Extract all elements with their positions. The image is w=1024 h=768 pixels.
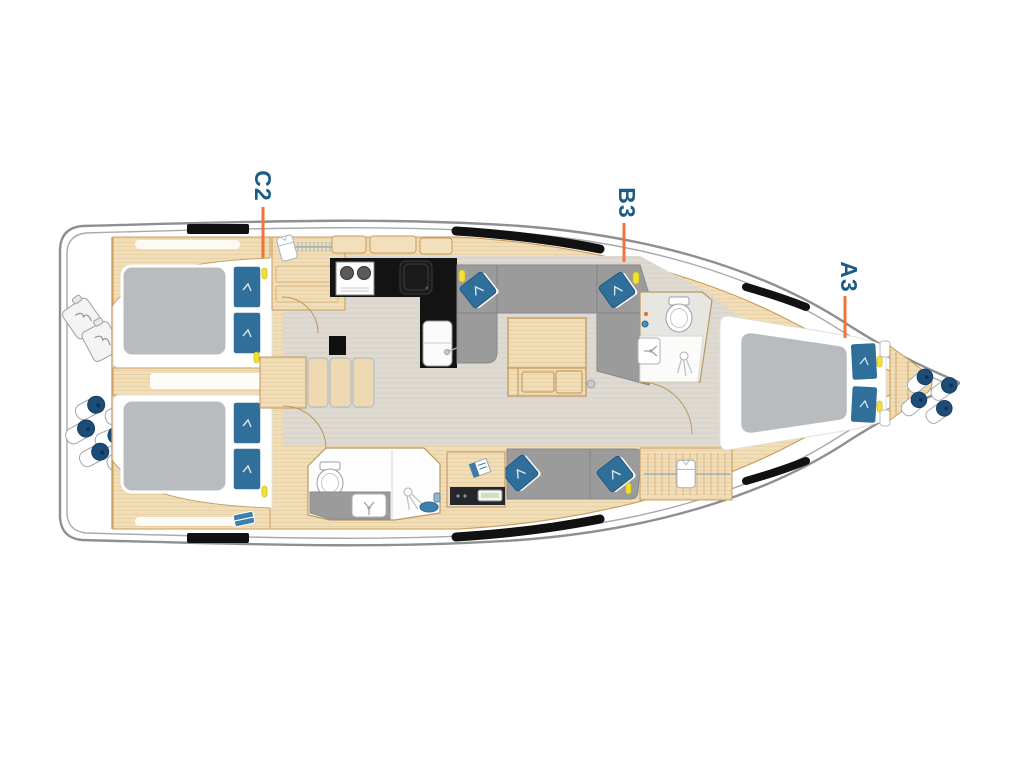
deck-plan-svg: C2 B3 A3 bbox=[0, 0, 1024, 768]
reading-light bbox=[262, 268, 267, 279]
deck-plan: C2 B3 A3 bbox=[0, 0, 1024, 768]
reading-light bbox=[254, 352, 259, 363]
mattress bbox=[122, 266, 227, 356]
shelf bbox=[880, 410, 890, 426]
deck-slot bbox=[135, 240, 240, 249]
hull-window bbox=[187, 533, 249, 543]
mattress bbox=[122, 400, 227, 492]
reading-light bbox=[633, 272, 639, 284]
forward-cabin bbox=[720, 316, 932, 450]
cabin-label: C2 bbox=[250, 170, 276, 201]
cabin-label: B3 bbox=[614, 187, 640, 218]
bath-mat-icon bbox=[420, 502, 438, 512]
reading-light bbox=[459, 270, 465, 282]
reading-light bbox=[262, 486, 267, 497]
knob bbox=[644, 312, 648, 316]
forward-head bbox=[638, 292, 712, 382]
aft-cabin-divider bbox=[113, 368, 272, 395]
nav-station bbox=[447, 452, 505, 507]
clothes-hanger-icon bbox=[677, 460, 695, 488]
table-knob bbox=[587, 380, 595, 388]
oven-icon bbox=[400, 261, 432, 294]
hatch-box bbox=[329, 336, 346, 355]
mattress bbox=[740, 332, 848, 434]
shelf bbox=[880, 341, 890, 357]
port-aft-cabin bbox=[113, 237, 272, 368]
starboard-aft-cabin bbox=[113, 395, 272, 529]
aft-head bbox=[308, 448, 440, 520]
deck-slot bbox=[135, 517, 240, 526]
knob bbox=[642, 321, 648, 327]
deck-lockers bbox=[332, 236, 452, 254]
toilet-icon bbox=[666, 297, 692, 332]
hull-window bbox=[187, 224, 249, 234]
stove-icon bbox=[336, 262, 374, 295]
starboard-settee bbox=[501, 449, 641, 499]
reading-light bbox=[877, 356, 882, 367]
saloon-table bbox=[508, 318, 595, 396]
reading-light bbox=[626, 483, 631, 494]
cabin-label: A3 bbox=[836, 261, 862, 292]
wardrobe bbox=[640, 448, 732, 500]
bottle-icon bbox=[434, 493, 440, 502]
